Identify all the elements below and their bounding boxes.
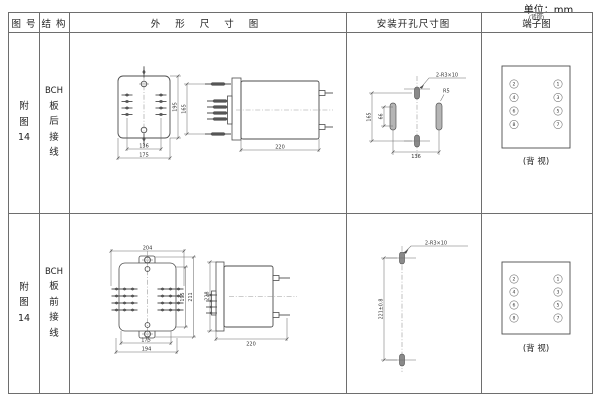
- terminal-number: 8: [513, 316, 516, 322]
- structure-char: 后: [49, 117, 59, 127]
- figure-char: 14: [18, 133, 30, 143]
- structure-char: 线: [49, 329, 59, 339]
- terminal-circles-right: 1 3 5 7: [554, 275, 562, 322]
- structure-char: 接: [49, 313, 59, 323]
- terminal-number: 3: [557, 95, 560, 101]
- structure-char: BCH: [45, 87, 63, 96]
- row1-side-view: 165 220: [181, 78, 333, 152]
- terminal-number: 4: [513, 290, 516, 296]
- header-figure: 图 号: [9, 13, 39, 32]
- structure-char: 线: [49, 148, 59, 158]
- row2-structure-cell: BCH 板 前 接 线: [39, 213, 69, 393]
- row2-mounting-drawing: 2-R3×10 221±0.8: [345, 212, 480, 393]
- terminal-number: 4: [513, 95, 516, 101]
- dim-label: 175: [141, 338, 151, 344]
- row1-structure-cell: BCH 板 后 接 线: [39, 32, 69, 213]
- row2-terminal-diagram: 2 4 6 8 1 3 5 7 (背 视): [480, 212, 592, 393]
- terminal-number: 5: [557, 303, 560, 309]
- dim-label: 66: [378, 113, 384, 119]
- terminal-number: 7: [557, 122, 560, 128]
- hole-spec-label: 2-R3×10: [425, 241, 447, 247]
- figure-char: 图: [19, 118, 29, 128]
- terminal-circles-left: 2 4 6 8: [510, 275, 518, 322]
- terminal-circles-left: 2 4 6 8: [510, 80, 518, 129]
- dim-label: 195: [172, 102, 178, 112]
- dim-label: 204: [143, 246, 153, 252]
- figure-char: 附: [19, 283, 29, 293]
- dim-label: 211: [188, 292, 194, 301]
- row2-outline-drawing: 204 195 211 175: [68, 212, 345, 393]
- dim-label: 221±0.8: [378, 299, 384, 320]
- document-page: 单位：mm 图 号 结 构 外 形 尺 寸 图 安装开孔尺寸图 (背视) 端子图…: [0, 0, 600, 400]
- dim-label: 165: [181, 104, 187, 114]
- dim-label: 194: [142, 347, 152, 353]
- terminal-number: 1: [557, 82, 560, 88]
- row1-figure-cell: 附 图 14: [9, 32, 39, 213]
- row2-front-view: 204 195 211 175: [110, 246, 197, 354]
- terminal-number: 2: [513, 277, 516, 283]
- figure-char: 图: [19, 298, 29, 308]
- hole-spec-label: 2-R3×10: [436, 73, 458, 79]
- structure-char: BCH: [45, 268, 63, 277]
- terminal-number: 2: [513, 82, 516, 88]
- structure-char: 前: [49, 298, 59, 308]
- dim-label: 175: [139, 153, 149, 159]
- dim-label: 195: [180, 292, 186, 301]
- terminal-number: 3: [557, 290, 560, 296]
- figure-char: 14: [18, 314, 30, 324]
- terminal-number: 5: [557, 109, 560, 115]
- dim-label: 220: [275, 145, 285, 151]
- dim-label: 220: [246, 342, 256, 348]
- row1-outline-drawing: 136 175 195 165: [68, 30, 345, 212]
- view-caption: (背 视): [523, 343, 549, 354]
- terminal-circles-right: 1 3 5 7: [554, 80, 562, 129]
- dim-label: 228: [205, 291, 211, 300]
- terminal-number: 7: [557, 316, 560, 322]
- row2-figure-cell: 附 图 14: [9, 213, 39, 393]
- terminal-number: 6: [513, 109, 516, 115]
- view-caption: (背 视): [523, 156, 549, 167]
- structure-char: 接: [49, 133, 59, 143]
- figure-char: 附: [19, 102, 29, 112]
- structure-char: 板: [49, 282, 59, 292]
- dim-label: 136: [411, 154, 421, 160]
- dim-label: 136: [139, 144, 149, 150]
- slot-radius-label: R5: [443, 89, 450, 95]
- row1-front-view: 136 175 195: [117, 66, 182, 160]
- header-terminal-label: 端子图: [522, 20, 551, 30]
- terminal-number: 6: [513, 303, 516, 309]
- row2-side-view: 228 220: [205, 261, 298, 348]
- row1-terminal-diagram: 2 4 6 8 1 3 5 7 (背 视): [480, 30, 592, 212]
- row1-mounting-drawing: 2-R3×10 R5 66 165 136: [345, 30, 480, 212]
- dim-label: 165: [366, 112, 372, 121]
- terminal-number: 8: [513, 122, 516, 128]
- header-structure: 结 构: [39, 13, 69, 32]
- terminal-number: 1: [557, 277, 560, 283]
- structure-char: 板: [49, 102, 59, 112]
